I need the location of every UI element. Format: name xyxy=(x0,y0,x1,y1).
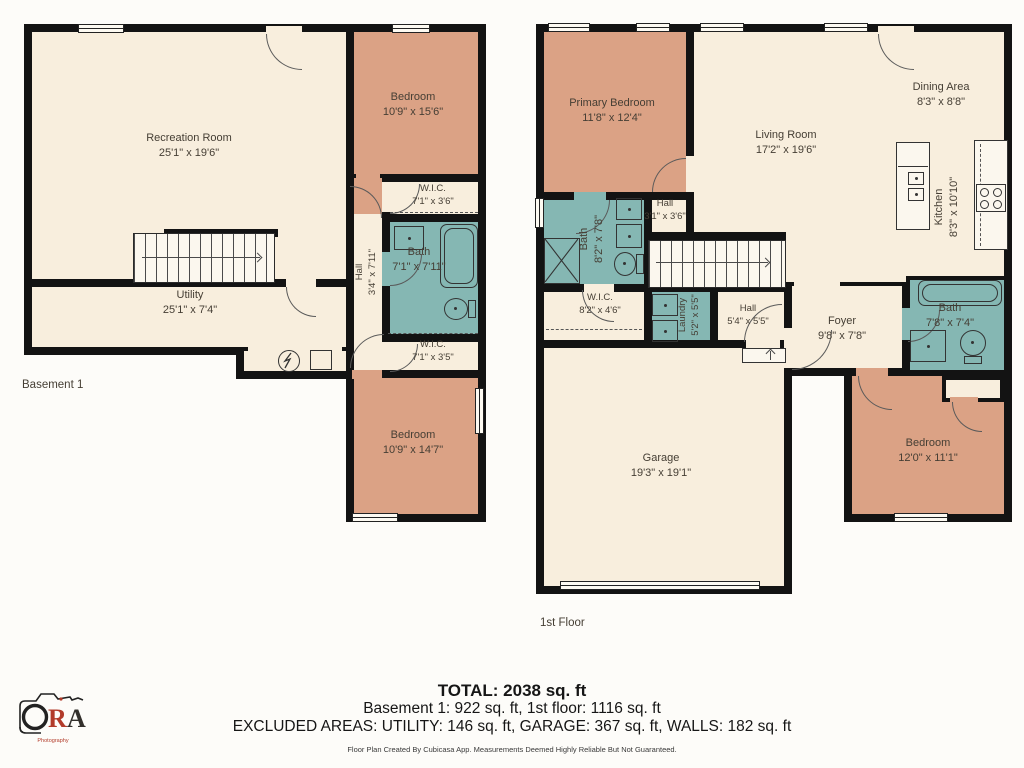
room-name: Laundry xyxy=(677,294,690,336)
excluded-areas-text: EXCLUDED AREAS: UTILITY: 146 sq. ft, GAR… xyxy=(0,719,1024,735)
washer xyxy=(652,294,678,316)
room-dims: 5'2" x 5'5" xyxy=(690,294,703,336)
window xyxy=(824,23,868,32)
room-name: Foyer xyxy=(818,314,866,329)
room-name: Hall xyxy=(354,249,367,295)
room-dims: 25'1" x 7'4" xyxy=(163,303,217,318)
footer-summary: TOTAL: 2038 sq. ft Basement 1: 922 sq. f… xyxy=(0,682,1024,754)
window xyxy=(548,23,590,32)
room-name: Recreation Room xyxy=(146,131,232,146)
room-dims: 8'2" x 7'8" xyxy=(592,215,607,263)
room-name: Bath xyxy=(392,245,445,260)
ora-photography-logo: R A Photography xyxy=(14,686,92,755)
sink xyxy=(616,224,642,248)
room-name: Hall xyxy=(644,198,686,211)
room-label-utility: Utility 25'1" x 7'4" xyxy=(163,288,217,318)
room-name: Garage xyxy=(631,451,691,466)
room-dims: 12'0" x 11'1" xyxy=(898,451,958,466)
toilet xyxy=(614,252,636,276)
room-dims: 19'3" x 19'1" xyxy=(631,466,691,481)
island-divider xyxy=(898,166,928,167)
logo-letter-a: A xyxy=(67,704,86,733)
room-label-hall-upper: Hall 3'1" x 3'6" xyxy=(644,198,686,224)
room-dims: 3'1" x 3'6" xyxy=(644,211,686,224)
sink xyxy=(616,198,642,220)
room-label-bedroom-upper: Bedroom 10'9" x 15'6" xyxy=(383,90,443,120)
window xyxy=(535,198,544,228)
room-name: Dining Area xyxy=(913,80,970,95)
window xyxy=(894,513,948,522)
sink-vanity xyxy=(910,330,946,362)
floor-label-first: 1st Floor xyxy=(540,617,585,629)
room-label-kitchen: Kitchen 8'3" x 10'10" xyxy=(932,177,962,237)
wall-opening xyxy=(794,278,840,290)
room-label-wic-upper: W.I.C. 7'1" x 3'6" xyxy=(412,183,454,209)
room-label-bedroom-lower: Bedroom 10'9" x 14'7" xyxy=(383,428,443,458)
room-dims: 7'1" x 3'6" xyxy=(412,196,454,209)
room-label-primary-bedroom: Primary Bedroom 11'8" x 12'4" xyxy=(569,96,655,126)
room-dims: 8'3" x 8'8" xyxy=(913,95,970,110)
stair-direction-line xyxy=(142,257,260,258)
shower xyxy=(544,238,580,284)
room-label-foyer: Foyer 9'8" x 7'8" xyxy=(818,314,866,344)
room-name: Bedroom xyxy=(898,436,958,451)
closet-dash-line xyxy=(390,212,478,213)
room-label-living: Living Room 17'2" x 19'6" xyxy=(755,128,816,158)
toilet xyxy=(444,298,468,320)
window xyxy=(700,23,744,32)
stove xyxy=(976,184,1006,212)
room-dims: 7'1" x 7'11" xyxy=(392,260,445,275)
floor-label-basement: Basement 1 xyxy=(22,379,83,391)
wall-opening xyxy=(356,172,380,180)
room-dims: 3'4" x 7'11" xyxy=(367,249,380,295)
room-name: Bath xyxy=(926,301,974,316)
room-name: Bedroom xyxy=(383,428,443,443)
room-label-wic-first: W.I.C. 8'2" x 4'6" xyxy=(579,292,621,318)
room-label-bedroom-first: Bedroom 12'0" x 11'1" xyxy=(898,436,958,466)
room-name: Bedroom xyxy=(383,90,443,105)
toilet-tank xyxy=(468,300,476,318)
camera-lens-o-icon xyxy=(24,706,47,729)
room-dims: 8'3" x 10'10" xyxy=(947,177,962,237)
room-name: Living Room xyxy=(755,128,816,143)
room-name: Utility xyxy=(163,288,217,303)
room-name: Primary Bedroom xyxy=(569,96,655,111)
toilet-tank xyxy=(964,356,982,364)
room-dims: 10'9" x 14'7" xyxy=(383,443,443,458)
kitchen-sink xyxy=(908,188,924,201)
logo-subtext: Photography xyxy=(37,738,68,744)
dryer xyxy=(652,320,678,342)
room-label-bath-hall: Bath 7'8" x 7'4" xyxy=(926,301,974,331)
stair-wall xyxy=(648,232,786,240)
room-label-laundry: Laundry 5'2" x 5'5" xyxy=(677,294,703,336)
room-dims: 5'4" x 5'5" xyxy=(727,316,769,329)
floor-plan-canvas: Recreation Room 25'1" x 19'6" Bedroom 10… xyxy=(0,0,1024,768)
room-dims: 10'9" x 15'6" xyxy=(383,105,443,120)
room-name: W.I.C. xyxy=(579,292,621,305)
kitchen-sink xyxy=(908,172,924,185)
logo-letter-r: R xyxy=(48,704,67,733)
room-name: Kitchen xyxy=(932,177,947,237)
room-dims: 7'1" x 3'5" xyxy=(412,352,454,365)
door-opening xyxy=(352,370,382,379)
appliance xyxy=(310,350,332,370)
room-dims: 11'8" x 12'4" xyxy=(569,111,655,126)
window xyxy=(392,24,430,33)
door-opening xyxy=(686,156,695,192)
garage-step xyxy=(742,348,786,363)
room-name: Hall xyxy=(727,303,769,316)
garage-door xyxy=(560,581,760,590)
total-area-text: TOTAL: 2038 sq. ft xyxy=(0,682,1024,699)
toilet-tank xyxy=(636,254,644,274)
closet-dash-line xyxy=(546,329,642,330)
room-label-hall-lower: Hall 5'4" x 5'5" xyxy=(727,303,769,329)
room-label-garage: Garage 19'3" x 19'1" xyxy=(631,451,691,481)
room-name: W.I.C. xyxy=(412,183,454,196)
window xyxy=(475,388,484,434)
room-label-wic-lower: W.I.C. 7'1" x 3'5" xyxy=(412,339,454,365)
window xyxy=(78,24,124,33)
room-dims: 7'8" x 7'4" xyxy=(926,316,974,331)
disclaimer-text: Floor Plan Created By Cubicasa App. Meas… xyxy=(0,745,1024,754)
camera-flash-dot-icon xyxy=(59,697,62,700)
room-dims: 17'2" x 19'6" xyxy=(755,143,816,158)
floor-areas-text: Basement 1: 922 sq. ft, 1st floor: 1116 … xyxy=(0,701,1024,717)
room-name: Bath xyxy=(577,215,592,263)
window xyxy=(636,23,670,32)
room-label-hall-basement: Hall 3'4" x 7'11" xyxy=(354,249,380,295)
room-label-bath-basement: Bath 7'1" x 7'11" xyxy=(392,245,445,275)
stair-direction-line xyxy=(656,262,768,263)
room-name: W.I.C. xyxy=(412,339,454,352)
window xyxy=(352,513,398,522)
room-label-bath-main: Bath 8'2" x 7'8" xyxy=(577,215,607,263)
room-label-dining: Dining Area 8'3" x 8'8" xyxy=(913,80,970,110)
room-dims: 25'1" x 19'6" xyxy=(146,146,232,161)
kitchen-island xyxy=(896,142,930,230)
closet-dash-line xyxy=(388,333,478,334)
toilet xyxy=(960,330,986,356)
room-dims: 8'2" x 4'6" xyxy=(579,305,621,318)
room-dims: 9'8" x 7'8" xyxy=(818,329,866,344)
room-label-recreation: Recreation Room 25'1" x 19'6" xyxy=(146,131,232,161)
water-heater-icon xyxy=(278,350,300,372)
